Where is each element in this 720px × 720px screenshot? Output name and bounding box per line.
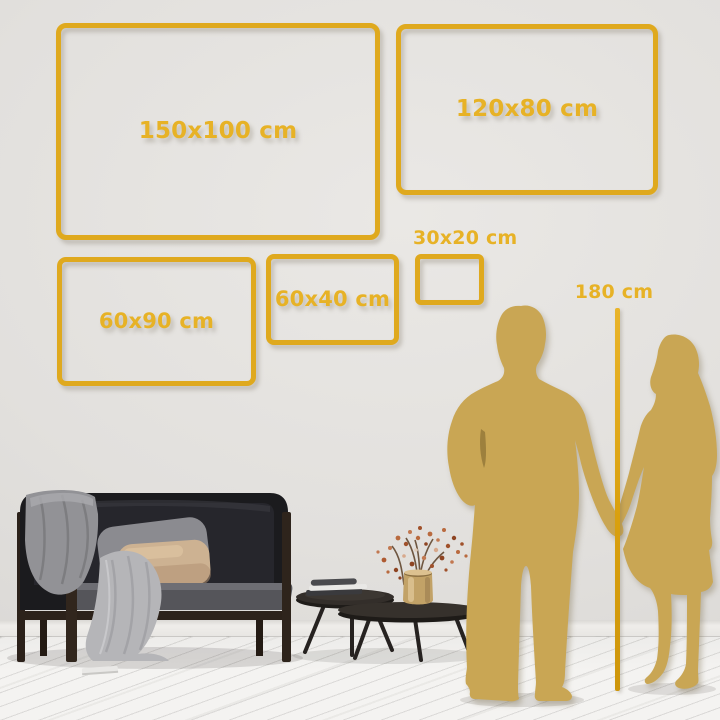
coffee-tables-illustration	[296, 526, 480, 660]
man-silhouette	[447, 305, 623, 701]
furniture-and-couple-illustration	[0, 0, 720, 720]
sofa-rear-leg-left	[40, 618, 47, 656]
couple-silhouette-icon	[447, 305, 717, 701]
table2-top	[338, 602, 480, 618]
height-marker-label: 180 cm	[544, 281, 684, 303]
sofa-rear-leg-right	[256, 618, 263, 656]
sofa-right-post	[282, 512, 291, 662]
vase-plant-illustration	[376, 526, 467, 605]
height-marker-line	[615, 308, 620, 691]
woman-silhouette	[609, 335, 717, 689]
wall-art-size-guide-scene: 150x100 cm 120x80 cm 60x90 cm 60x40 cm 3…	[0, 0, 720, 720]
books-stack	[306, 578, 368, 596]
